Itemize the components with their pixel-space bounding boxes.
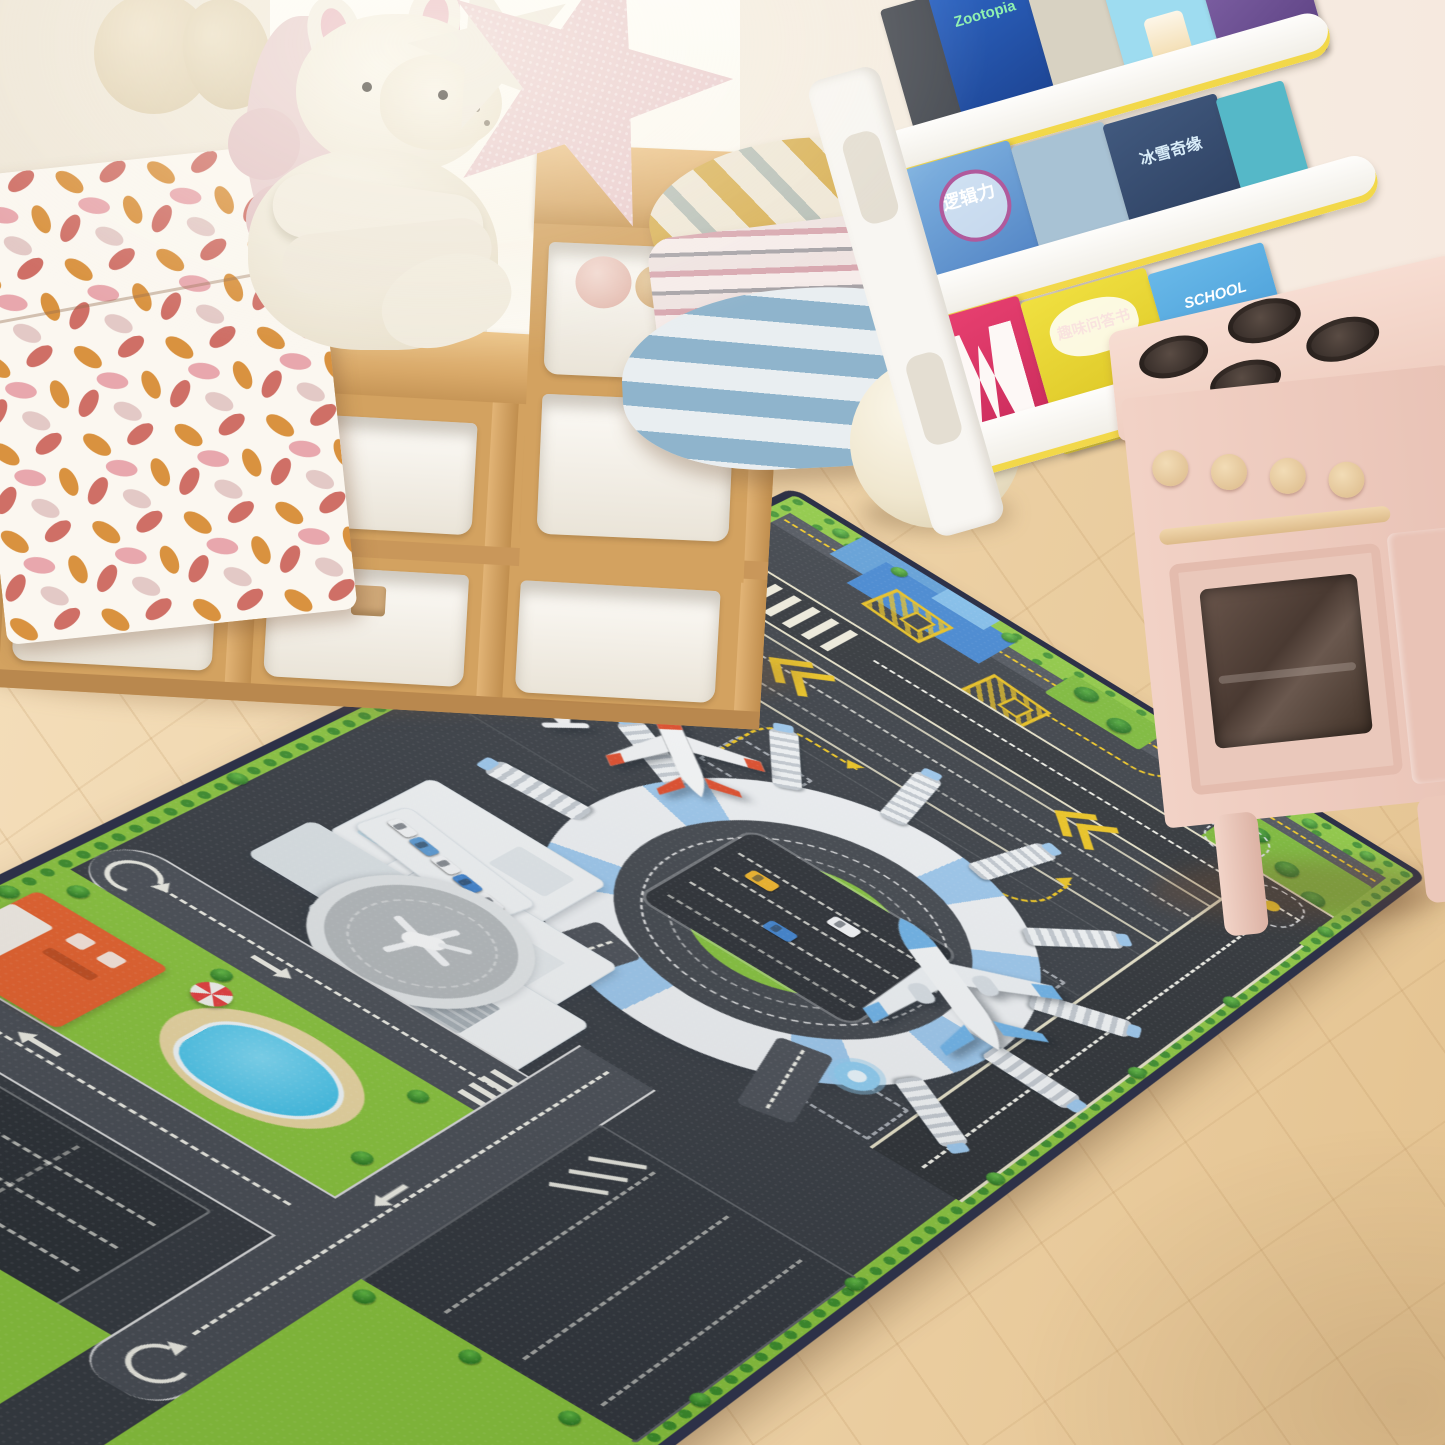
nostril — [484, 120, 490, 126]
storage-bin — [515, 580, 721, 703]
oven-door — [1168, 543, 1403, 796]
unicorn-eye — [438, 90, 448, 100]
unicorn-eye — [362, 82, 372, 92]
stove-burner — [1226, 291, 1303, 350]
toy-ball-pink — [574, 255, 632, 309]
stove-burner — [1304, 310, 1381, 369]
stove-knob — [1268, 456, 1308, 496]
stove-burner — [1137, 329, 1210, 385]
playroom-scene: Zootopia HAPPY BIRTHDAY TO YOU! 逻辑力 冰雪奇缘… — [0, 0, 1445, 1445]
kitchen-leg — [1416, 794, 1445, 904]
stove-knob — [1209, 452, 1249, 492]
side-slot — [903, 349, 965, 448]
side-slot — [840, 128, 902, 227]
oven-window — [1199, 573, 1373, 749]
book-title: 冰雪奇缘 — [1116, 123, 1225, 175]
stove-knob — [1150, 448, 1190, 488]
kitchen-front — [1121, 364, 1445, 828]
oven-handle — [1159, 505, 1391, 545]
oven-rack — [1218, 662, 1356, 684]
kitchen-leg — [1213, 811, 1270, 937]
stove-knob — [1327, 460, 1367, 500]
unicorn-mane — [228, 108, 300, 180]
book-title: Zootopia — [940, 0, 1029, 34]
